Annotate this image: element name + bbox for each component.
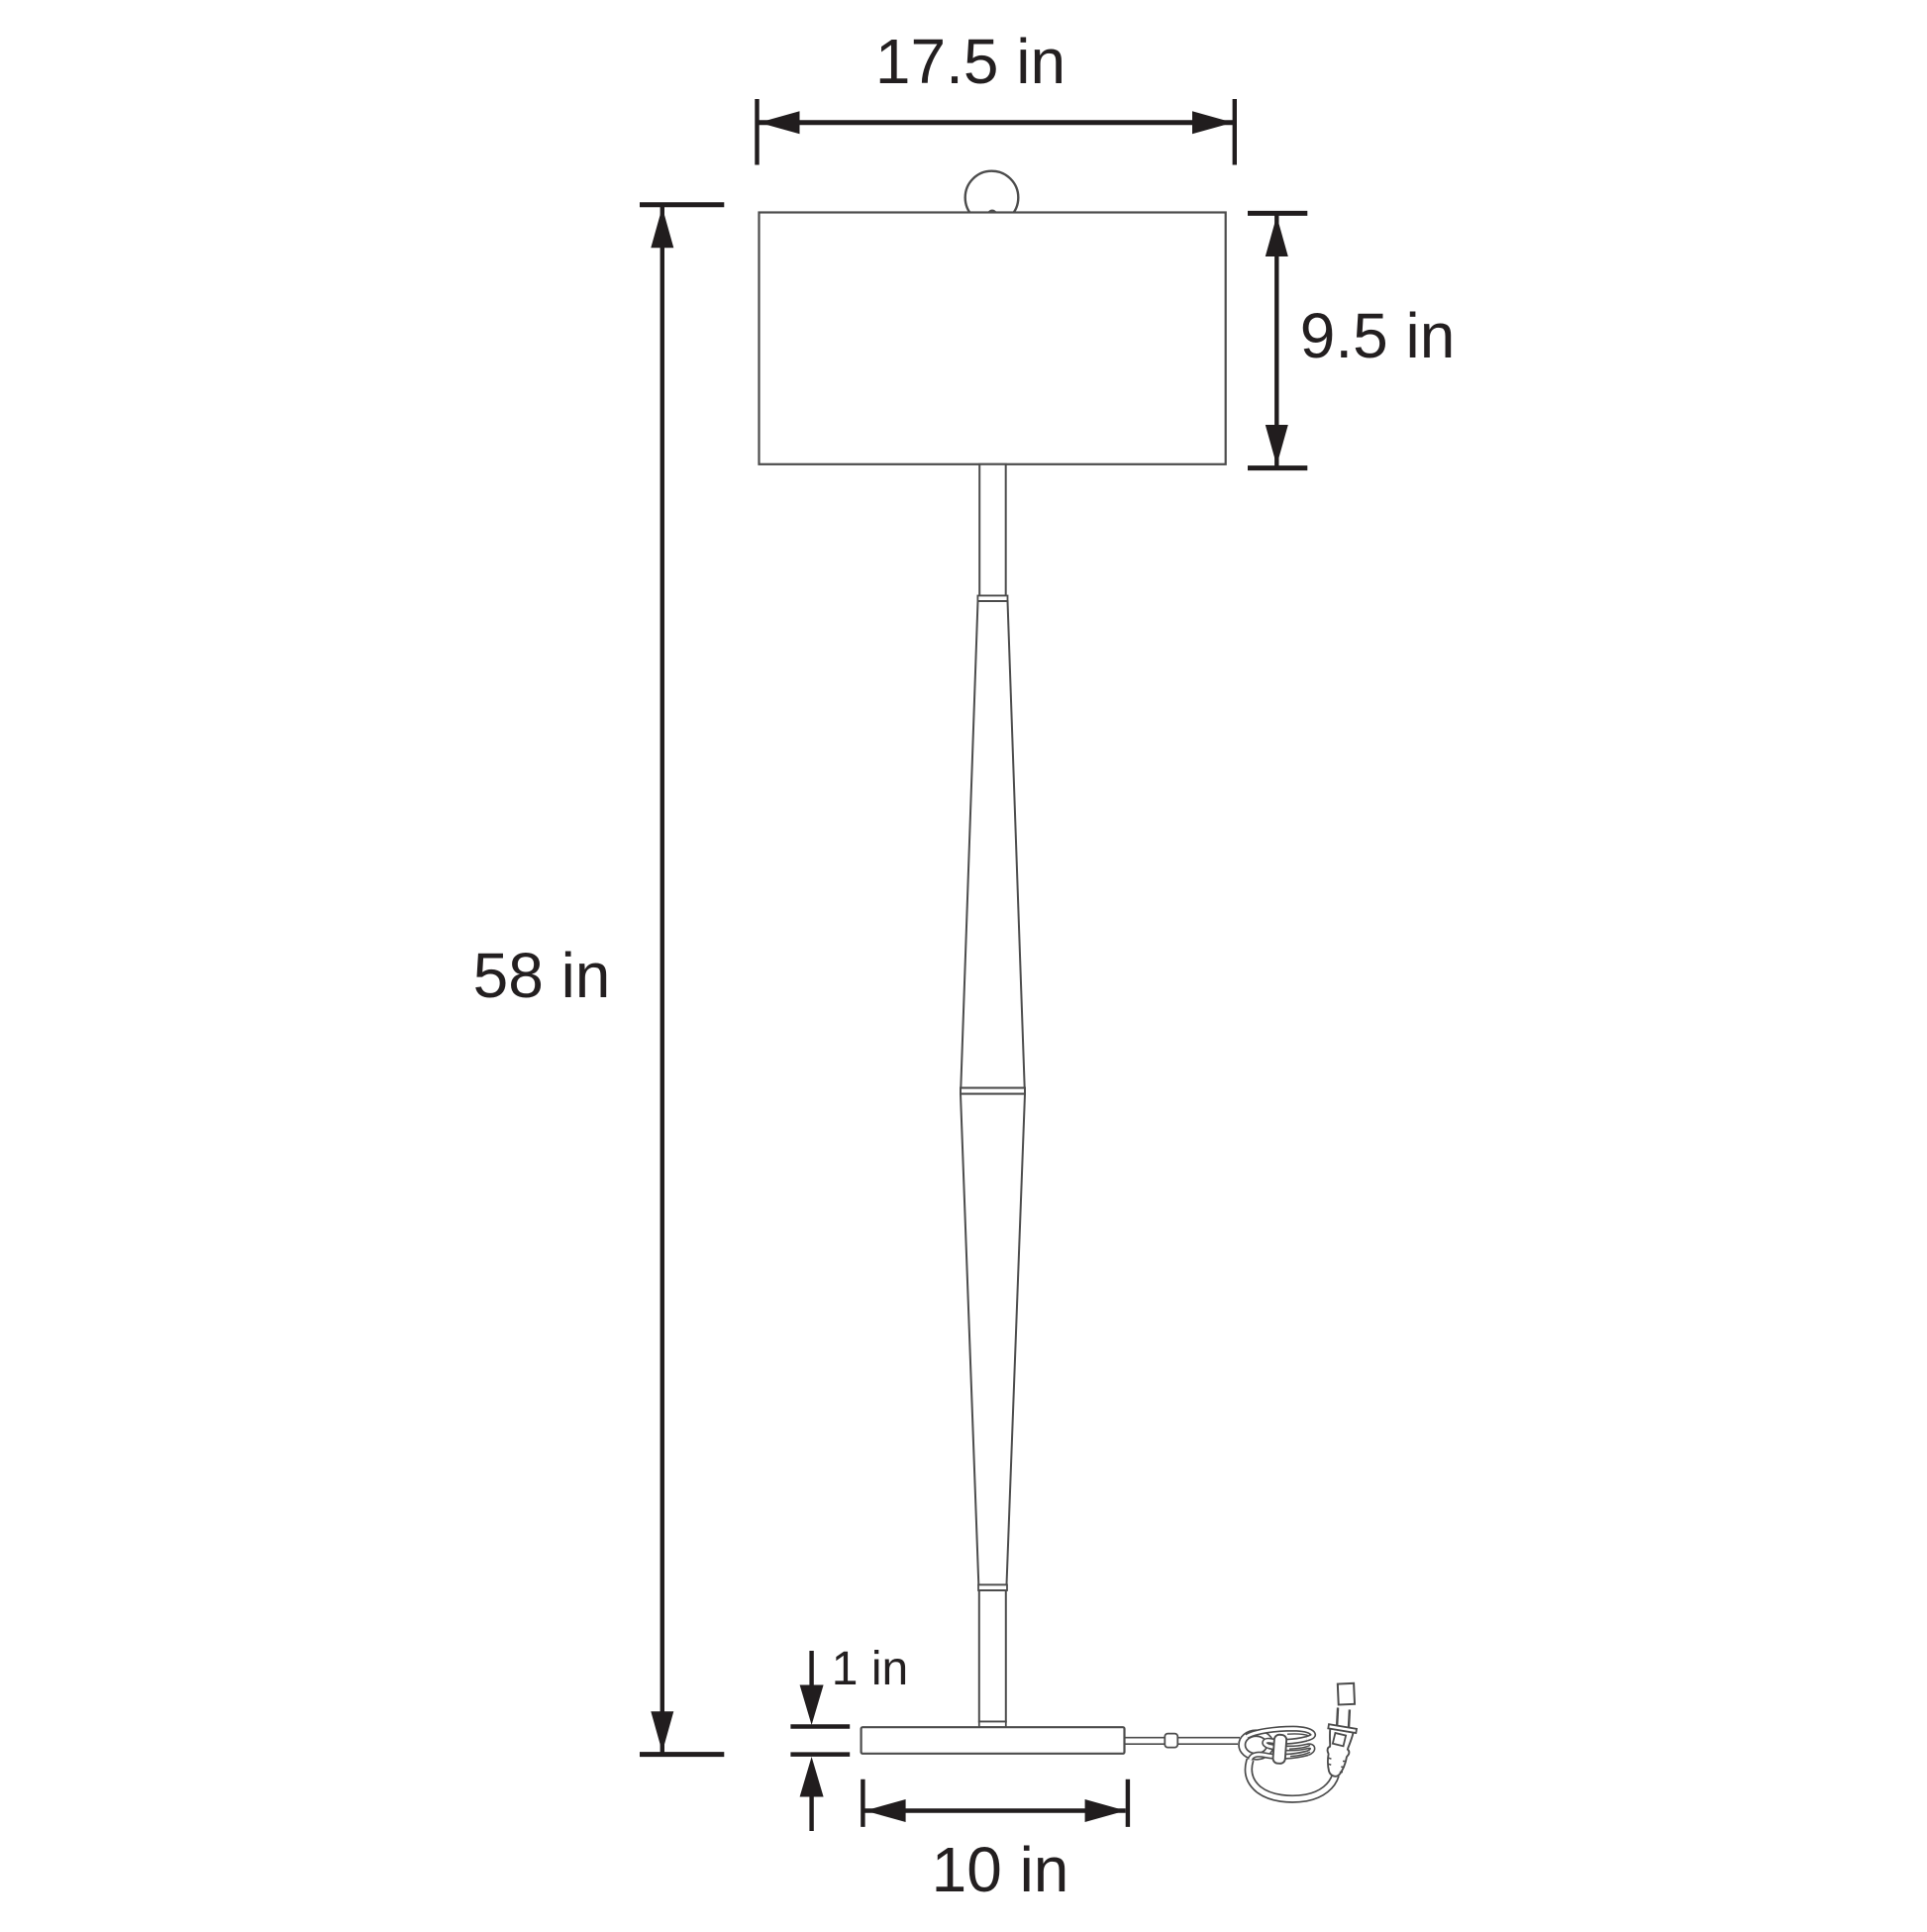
svg-text:10 in: 10 in: [932, 1834, 1069, 1905]
svg-text:17.5 in: 17.5 in: [875, 26, 1065, 97]
svg-text:1 in: 1 in: [832, 1643, 908, 1695]
svg-text:58 in: 58 in: [473, 940, 611, 1011]
svg-text:9.5 in: 9.5 in: [1300, 300, 1456, 371]
